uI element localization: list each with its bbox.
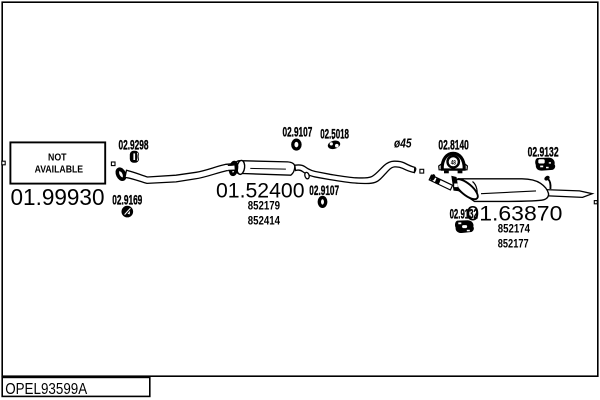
- svg-text:852179: 852179: [248, 199, 281, 213]
- svg-text:02.5018: 02.5018: [320, 126, 349, 141]
- svg-text:NOT: NOT: [48, 151, 67, 163]
- svg-text:02.9107: 02.9107: [283, 124, 313, 139]
- svg-text:852177: 852177: [498, 237, 529, 251]
- svg-text:02.9169: 02.9169: [112, 193, 142, 208]
- svg-text:852174: 852174: [498, 221, 531, 235]
- svg-text:ø45: ø45: [394, 136, 412, 151]
- svg-text:02.8140: 02.8140: [438, 137, 469, 152]
- svg-text:48: 48: [451, 159, 456, 166]
- svg-text:AVAILABLE: AVAILABLE: [35, 163, 84, 175]
- svg-text:02.9298: 02.9298: [119, 137, 149, 152]
- svg-text:OPEL93599A: OPEL93599A: [5, 381, 87, 398]
- svg-text:02.9107: 02.9107: [309, 183, 339, 198]
- svg-text:852414: 852414: [248, 213, 281, 227]
- svg-text:02.9132: 02.9132: [528, 144, 559, 159]
- svg-text:01.99930: 01.99930: [11, 184, 105, 210]
